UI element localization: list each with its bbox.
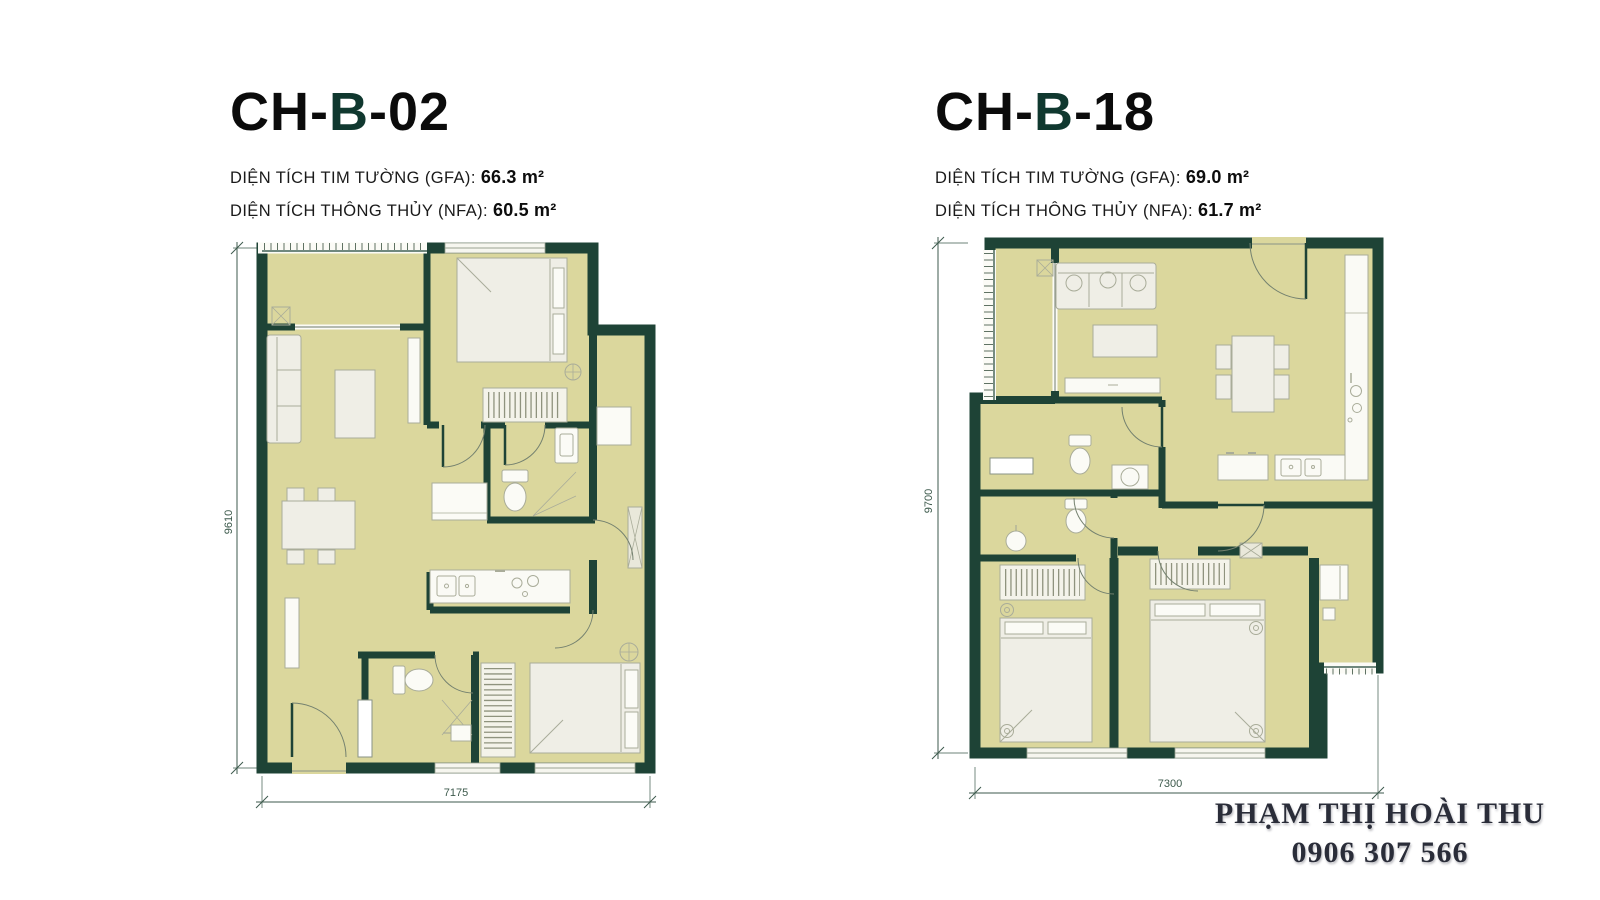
dimension-height (231, 242, 259, 774)
wardrobe-master (483, 388, 567, 422)
bed-single (1320, 565, 1348, 600)
coffee-table (1093, 325, 1157, 357)
bathroom-sink (555, 428, 578, 463)
entry-gap (292, 762, 346, 774)
title-accent: B (1034, 82, 1074, 142)
gfa-value: 69.0 m² (1186, 167, 1249, 187)
plan-header-ch-b-18: CH-B-18 DIỆN TÍCH TIM TƯỜNG (GFA): 69.0 … (935, 85, 1261, 227)
title-prefix: CH- (935, 82, 1034, 142)
contact-name: PHẠM THỊ HOÀI THU (1215, 797, 1545, 831)
nfa-value: 61.7 m² (1198, 200, 1261, 220)
cabinet (285, 598, 299, 668)
dim-width-label: 7175 (444, 787, 468, 799)
gfa-label: DIỆN TÍCH TIM TƯỜNG (GFA): (935, 169, 1181, 187)
gfa-value: 66.3 m² (481, 167, 544, 187)
window-top (445, 243, 545, 253)
kitchen-sink-counter (1275, 455, 1345, 480)
plan-title: CH-B-18 (935, 85, 1261, 139)
toilet-a (1069, 435, 1091, 474)
sofa (267, 335, 301, 443)
dim-height-label: 9610 (223, 510, 235, 534)
contact-phone: 0906 307 566 (1215, 836, 1545, 870)
entry-gap (1252, 237, 1306, 249)
balcony-rail (983, 250, 996, 400)
bed-master (457, 258, 567, 362)
bathroom-vanity (990, 458, 1033, 474)
gfa-label: DIỆN TÍCH TIM TƯỜNG (GFA): (230, 169, 476, 187)
washing-machine (432, 483, 487, 520)
dimension-height (932, 237, 968, 759)
window-bottom-1 (435, 763, 500, 773)
title-prefix: CH- (230, 82, 329, 142)
area-lines: DIỆN TÍCH TIM TƯỜNG (GFA): 69.0 m² DIỆN … (935, 161, 1261, 227)
floor-plan-ch-b-18: 9700 7300 (918, 223, 1388, 808)
coffee-table (335, 370, 375, 438)
kitchen-island (1218, 453, 1268, 480)
tv-console (1065, 378, 1160, 393)
desk (597, 407, 631, 445)
plan-title: CH-B-02 (230, 85, 556, 139)
toilet (502, 470, 528, 511)
nfa-row: DIỆN TÍCH THÔNG THỦY (NFA): 60.5 m² (230, 194, 556, 227)
nfa-label: DIỆN TÍCH THÔNG THỦY (NFA): (935, 202, 1193, 220)
title-accent: B (329, 82, 369, 142)
title-suffix: -02 (369, 82, 450, 142)
rail-bottom-right (1324, 663, 1376, 674)
contact-watermark: PHẠM THỊ HOÀI THU 0906 307 566 (1215, 797, 1545, 870)
floor-plan-ch-b-02: 9610 7175 (205, 230, 665, 815)
gfa-row: DIỆN TÍCH TIM TƯỜNG (GFA): 69.0 m² (935, 161, 1261, 194)
window-bottom-2 (1175, 748, 1265, 758)
bed-bedroom-2 (1150, 600, 1265, 742)
tv-console (408, 338, 420, 423)
kitchen-counter-right (1345, 255, 1368, 480)
bed-2 (530, 663, 640, 753)
nfa-value: 60.5 m² (493, 200, 556, 220)
door-panel (358, 700, 372, 757)
title-suffix: -18 (1074, 82, 1155, 142)
sofa (1056, 263, 1156, 309)
wardrobe-bedroom-2 (1150, 559, 1230, 589)
shaft-box-icon-2 (628, 507, 642, 568)
side-table (1323, 608, 1335, 620)
sink-a (1112, 465, 1148, 489)
kitchen-counter (430, 570, 570, 603)
window-bottom-1 (1027, 748, 1127, 758)
bed-bedroom-1 (1000, 618, 1092, 742)
wardrobe-bedroom-1 (1000, 565, 1085, 600)
dim-height-label: 9700 (923, 489, 935, 513)
wardrobe-2 (481, 663, 515, 757)
gfa-row: DIỆN TÍCH TIM TƯỜNG (GFA): 66.3 m² (230, 161, 556, 194)
ac-box-icon (1240, 543, 1262, 558)
balcony-rail (258, 243, 427, 254)
nfa-label: DIỆN TÍCH THÔNG THỦY (NFA): (230, 202, 488, 220)
window-bottom-2 (535, 763, 635, 773)
ceiling-fan-icon (565, 364, 581, 380)
dim-width-label: 7300 (1158, 778, 1182, 790)
flyer-canvas: CH-B-02 DIỆN TÍCH TIM TƯỜNG (GFA): 66.3 … (0, 0, 1600, 900)
area-lines: DIỆN TÍCH TIM TƯỜNG (GFA): 66.3 m² DIỆN … (230, 161, 556, 227)
toilet-b (1065, 499, 1087, 533)
ceiling-fan-icon-2 (620, 643, 638, 661)
plan-header-ch-b-02: CH-B-02 DIỆN TÍCH TIM TƯỜNG (GFA): 66.3 … (230, 85, 556, 227)
